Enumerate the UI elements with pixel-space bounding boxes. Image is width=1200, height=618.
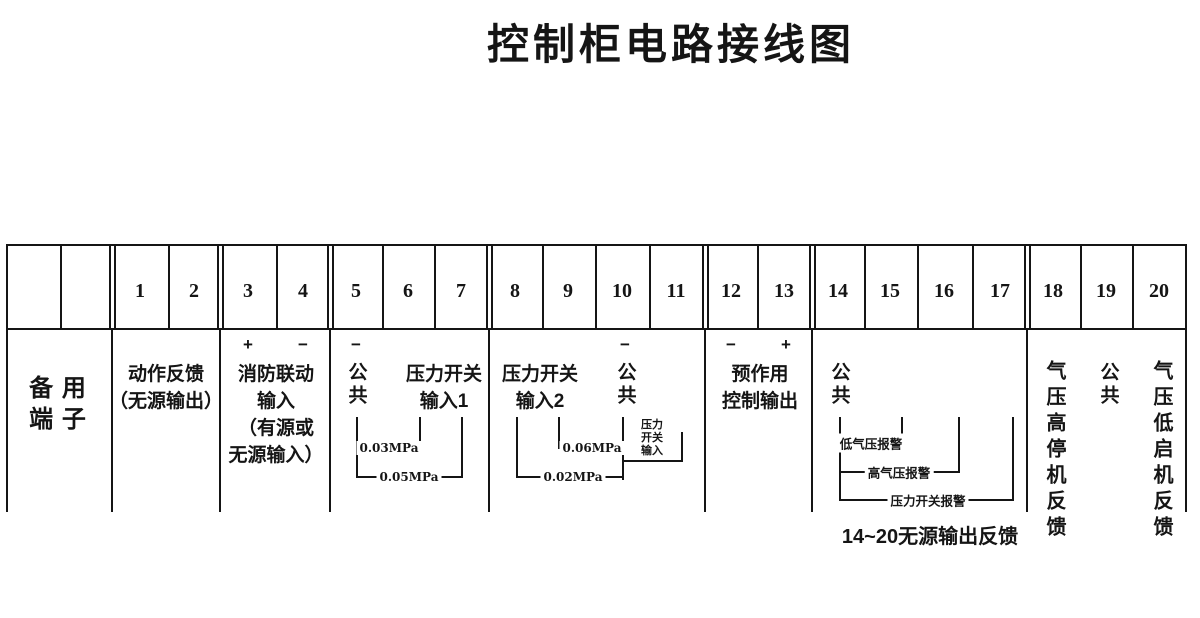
preaction-output-line1: 预作用 [722, 361, 798, 388]
low-pressure-start-feedback-label: 气压低启机反馈 [1151, 360, 1171, 542]
setpoint-0-02mpa: 0.02MPa [541, 470, 606, 484]
terminal5-minus-sign: − [351, 336, 361, 353]
terminal12-minus-sign: − [726, 336, 736, 353]
terminal-8: 8 [510, 281, 520, 301]
grid-vline-double [1024, 244, 1026, 330]
grid-vline-double [217, 244, 219, 330]
group-separator [1026, 328, 1028, 512]
high-air-pressure-alarm-label: 高气压报警 [865, 463, 934, 482]
psi-line3: 输入 [641, 445, 663, 458]
fire-linkage-line2: 输入 [228, 388, 323, 415]
terminal-10: 10 [612, 281, 632, 301]
common-label-t10: 公共 [616, 362, 635, 408]
fire-linkage-line1: 消防联动 [228, 361, 323, 388]
grid-vline [1080, 244, 1082, 330]
pressure-input1-line1: 压力开关 [406, 361, 482, 388]
group-separator [219, 328, 221, 512]
wire-line [681, 432, 683, 462]
pressure-input1-label: 压力开关 输入1 [406, 361, 482, 415]
grid-vline-double [327, 244, 329, 330]
terminal-15: 15 [880, 281, 900, 301]
grid-vline [1185, 244, 1187, 330]
preaction-output-line2: 控制输出 [722, 388, 798, 415]
action-feedback-line1: 动作反馈 [109, 361, 223, 388]
group-separator [488, 328, 490, 512]
group-separator [704, 328, 706, 512]
grid-vline [6, 244, 8, 330]
grid-vline-double [702, 244, 704, 330]
terminal-9: 9 [563, 281, 573, 301]
pressure-switch-alarm-label: 压力开关报警 [887, 491, 968, 510]
pressure-switch-input-note: 压力 开关 输入 [639, 419, 665, 458]
grid-vline-double [109, 244, 111, 330]
terminal4-minus-sign: − [298, 336, 308, 353]
fire-linkage-line3: （有源或 [228, 415, 323, 442]
setpoint-0-05mpa: 0.05MPa [377, 470, 442, 484]
grid-vline [168, 244, 170, 330]
pressure-input2-line1: 压力开关 [502, 361, 578, 388]
pressure-input1-line2: 输入1 [406, 388, 482, 415]
terminal-13: 13 [774, 281, 794, 301]
terminal-7: 7 [456, 281, 466, 301]
spare-terminals-line2: 端 子 [29, 404, 87, 435]
wire-line [461, 417, 463, 478]
grid-vline-double [491, 244, 493, 330]
common-label-t5: 公共 [347, 362, 366, 408]
grid-vline [60, 244, 62, 330]
wire-line [1012, 417, 1014, 501]
action-feedback-line2: （无源输出） [109, 388, 223, 415]
common-label-t19: 公共 [1099, 362, 1118, 408]
terminal-4: 4 [298, 281, 308, 301]
grid-vline-double [1029, 244, 1031, 330]
grid-vline [276, 244, 278, 330]
spare-terminals-label: 备 用 端 子 [29, 373, 87, 435]
group-separator [6, 328, 8, 512]
grid-vline-double [332, 244, 334, 330]
terminal-2: 2 [189, 281, 199, 301]
high-pressure-stop-feedback-label: 气压高停机反馈 [1044, 360, 1064, 542]
psi-line2: 开关 [641, 432, 663, 445]
group-separator [1185, 328, 1187, 512]
action-feedback-label: 动作反馈 （无源输出） [109, 361, 223, 415]
grid-vline [595, 244, 597, 330]
terminal-14: 14 [828, 281, 848, 301]
terminal-19: 19 [1096, 281, 1116, 301]
grid-vline [917, 244, 919, 330]
group-separator [111, 328, 113, 512]
grid-vline [1132, 244, 1134, 330]
terminal3-plus-sign: + [243, 336, 253, 353]
terminal-1: 1 [135, 281, 145, 301]
terminal10-minus-sign: − [620, 336, 630, 353]
wiring-diagram: 控制柜电路接线图 1 2 3 4 5 6 7 8 9 10 11 12 13 1… [0, 0, 1200, 618]
wire-line [622, 460, 683, 462]
pressure-input2-label: 压力开关 输入2 [502, 361, 578, 415]
terminal-16: 16 [934, 281, 954, 301]
grid-vline-double [814, 244, 816, 330]
wire-line [839, 417, 841, 501]
grid-vline [864, 244, 866, 330]
spare-terminals-line1: 备 用 [29, 373, 87, 404]
pressure-input2-line2: 输入2 [502, 388, 578, 415]
wire-line [516, 417, 518, 478]
terminal13-plus-sign: + [781, 336, 791, 353]
fire-linkage-label: 消防联动 输入 （有源或 无源输入） [228, 361, 323, 469]
passive-output-feedback-caption: 14~20无源输出反馈 [842, 527, 1018, 547]
terminal-17: 17 [990, 281, 1010, 301]
grid-vline [757, 244, 759, 330]
terminal-11: 11 [667, 281, 686, 301]
group-separator [811, 328, 813, 512]
terminal-12: 12 [721, 281, 741, 301]
diagram-title: 控制柜电路接线图 [487, 25, 855, 67]
psi-line1: 压力 [641, 419, 663, 432]
grid-vline-double [222, 244, 224, 330]
terminal-3: 3 [243, 281, 253, 301]
grid-vline [972, 244, 974, 330]
grid-vline [382, 244, 384, 330]
low-air-pressure-alarm-label: 低气压报警 [837, 434, 906, 453]
grid-vline-double [707, 244, 709, 330]
terminal-20: 20 [1149, 281, 1169, 301]
setpoint-0-03mpa: 0.03MPa [357, 441, 422, 455]
grid-vline-double [809, 244, 811, 330]
terminal-18: 18 [1043, 281, 1063, 301]
grid-vline-double [486, 244, 488, 330]
grid-vline-double [114, 244, 116, 330]
group-separator [329, 328, 331, 512]
terminal-6: 6 [403, 281, 413, 301]
grid-vline [542, 244, 544, 330]
preaction-output-label: 预作用 控制输出 [722, 361, 798, 415]
terminal-5: 5 [351, 281, 361, 301]
setpoint-0-06mpa: 0.06MPa [560, 441, 625, 455]
common-label-t14: 公共 [830, 362, 849, 408]
wire-line [958, 417, 960, 473]
grid-vline [434, 244, 436, 330]
fire-linkage-line4: 无源输入） [228, 442, 323, 469]
grid-vline [649, 244, 651, 330]
